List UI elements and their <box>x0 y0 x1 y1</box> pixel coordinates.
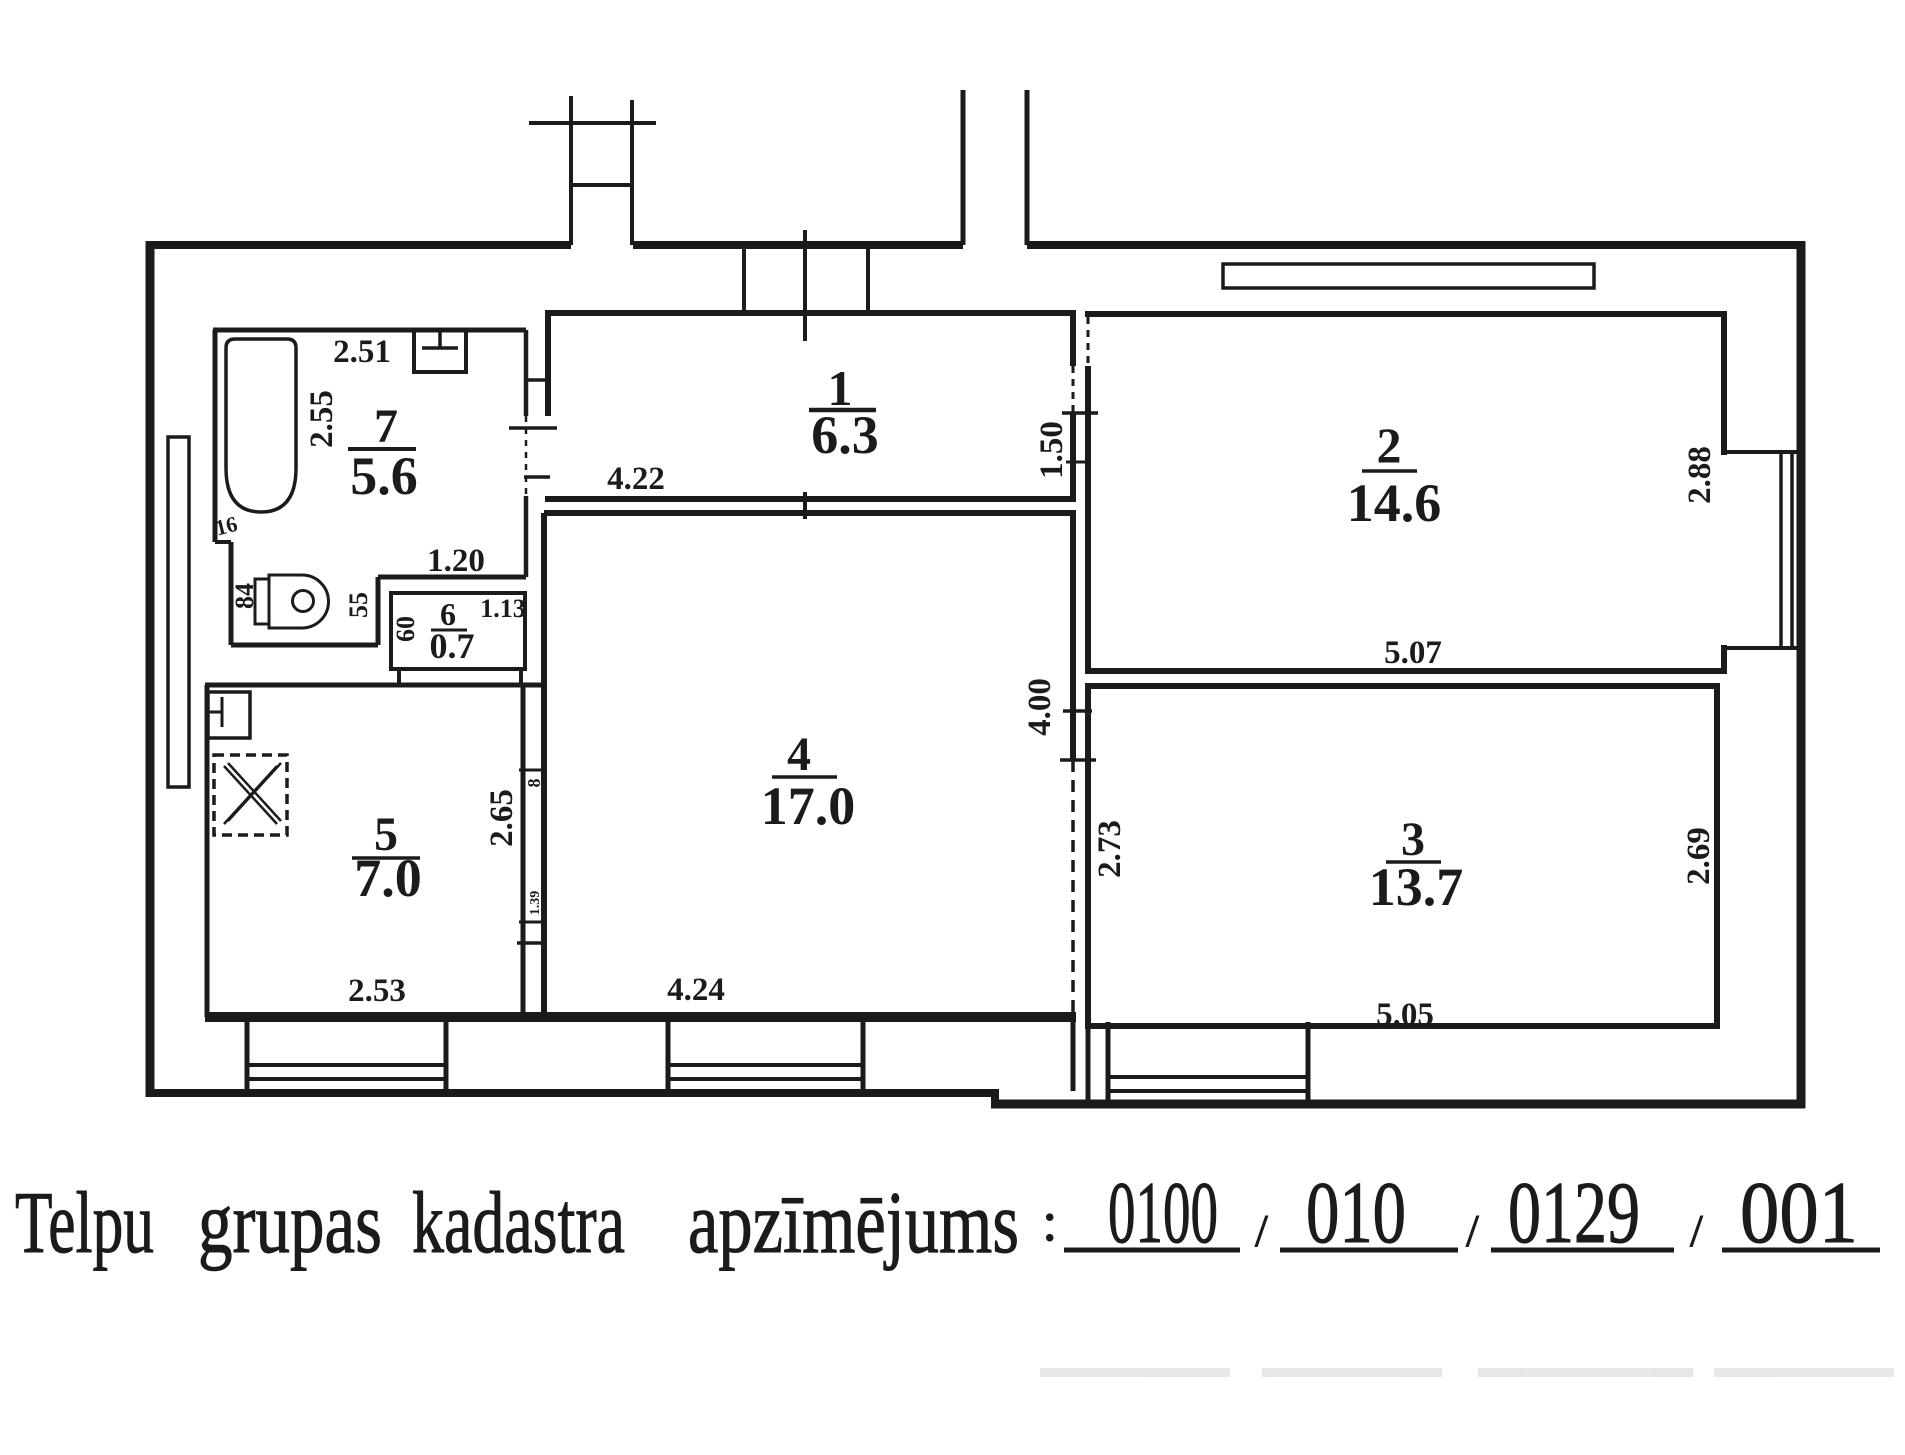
svg-text:4.22: 4.22 <box>607 461 665 497</box>
svg-text:13.7: 13.7 <box>1369 857 1464 917</box>
svg-text:2.51: 2.51 <box>333 334 391 370</box>
svg-text:4.00: 4.00 <box>1022 678 1058 736</box>
svg-text:010: 010 <box>1306 1165 1406 1262</box>
svg-text:2: 2 <box>1377 417 1402 473</box>
svg-text:5.07: 5.07 <box>1384 635 1442 671</box>
svg-text:/: / <box>1690 1205 1703 1256</box>
svg-text:2.65: 2.65 <box>484 789 520 847</box>
svg-text:5.6: 5.6 <box>350 446 418 506</box>
svg-text:1.20: 1.20 <box>427 543 485 579</box>
svg-text:8: 8 <box>524 779 544 788</box>
svg-text:84: 84 <box>230 583 259 609</box>
svg-text:2.55: 2.55 <box>304 390 340 448</box>
svg-text:4: 4 <box>787 728 811 781</box>
svg-text:60: 60 <box>391 616 420 642</box>
svg-text:2.69: 2.69 <box>1681 827 1717 885</box>
svg-text:1.13: 1.13 <box>480 594 526 623</box>
svg-text:kadastra: kadastra <box>412 1175 625 1272</box>
svg-text:6.3: 6.3 <box>811 405 879 465</box>
svg-text:17.0: 17.0 <box>761 776 856 836</box>
svg-text:14.6: 14.6 <box>1347 473 1442 533</box>
svg-text:Telpu: Telpu <box>15 1175 154 1272</box>
svg-text:0100: 0100 <box>1108 1165 1218 1262</box>
svg-text:apzīmējums: apzīmējums <box>688 1175 1019 1272</box>
svg-text:5.05: 5.05 <box>1376 997 1434 1033</box>
svg-text:/: / <box>1466 1205 1479 1256</box>
svg-text:0.7: 0.7 <box>430 626 475 666</box>
svg-text:4.24: 4.24 <box>667 972 725 1008</box>
svg-text:001: 001 <box>1740 1165 1858 1262</box>
svg-text:2.88: 2.88 <box>1682 446 1718 504</box>
svg-text:55: 55 <box>344 592 373 618</box>
svg-text:grupas: grupas <box>198 1175 382 1272</box>
svg-text:1.50: 1.50 <box>1034 421 1070 479</box>
svg-text:2.73: 2.73 <box>1092 820 1128 878</box>
svg-text:2.53: 2.53 <box>348 973 406 1009</box>
svg-text:/: / <box>1255 1205 1268 1256</box>
svg-text:1.39: 1.39 <box>528 891 543 916</box>
svg-text:0129: 0129 <box>1508 1165 1640 1262</box>
svg-text::: : <box>1042 1191 1058 1253</box>
